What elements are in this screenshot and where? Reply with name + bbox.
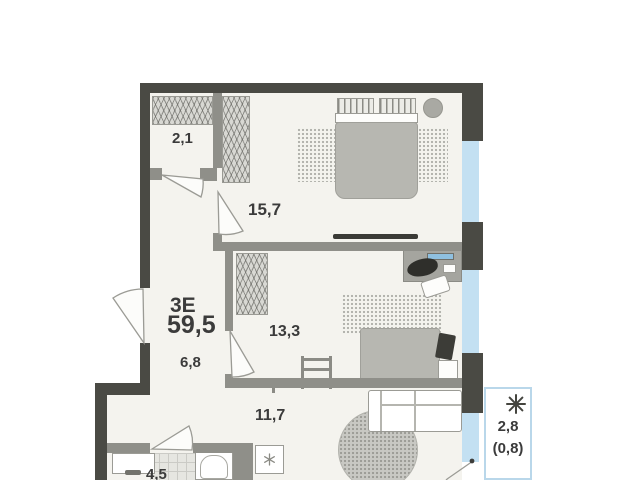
closet-door [162, 175, 203, 197]
room-label-bedroom-main: 15,7 [248, 201, 281, 218]
bedroom-second-door [230, 331, 254, 377]
balcony-door [446, 461, 473, 480]
bathroom-door [152, 426, 193, 450]
room-label-kitchen-living: 11,7 [255, 408, 285, 424]
room-label-hallway: 6,8 [180, 355, 201, 370]
balcony-area-coefficient: (0,8) [484, 441, 532, 456]
floor-plan: 2,1 15,7 3Е 59,5 6,8 13,3 11,7 4,5 2,8 (… [0, 0, 640, 480]
apartment-total-area: 59,5 [167, 313, 216, 338]
room-label-bathroom: 4,5 [146, 467, 167, 480]
balcony-door-hinge [470, 459, 475, 464]
balcony-area: 2,8 [484, 419, 532, 434]
room-label-closet: 2,1 [172, 131, 193, 146]
room-label-bedroom-second: 13,3 [269, 324, 300, 340]
bedroom-main-door [218, 192, 243, 235]
doors-overlay [0, 0, 640, 480]
entrance-door [113, 289, 144, 343]
